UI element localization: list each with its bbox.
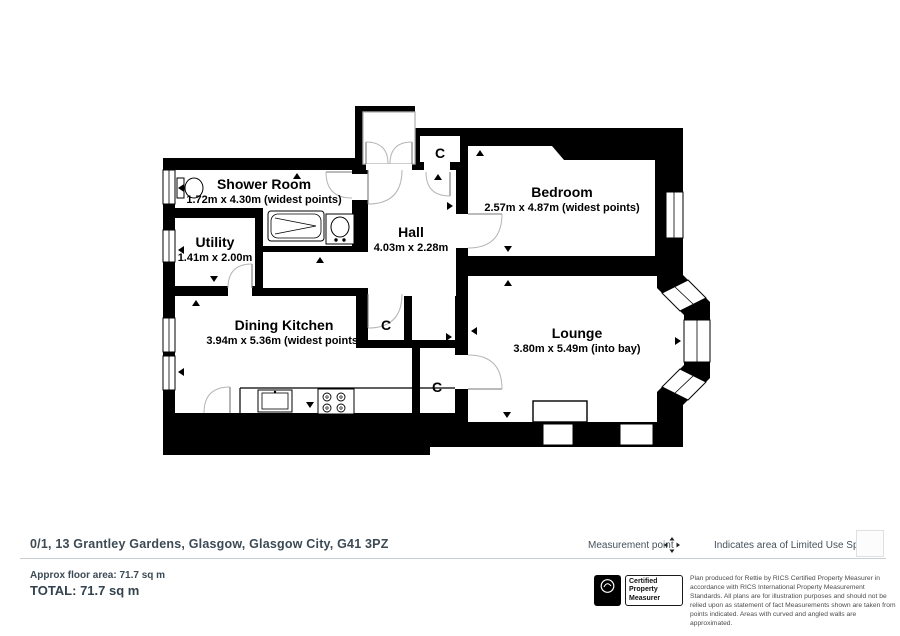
room-label-shower-room: Shower Room: [217, 176, 311, 192]
window-lounge-bottom-2: [620, 424, 653, 445]
room-dims-utility: 1.41m x 2.00m: [178, 252, 253, 264]
cupboard-label-3: C: [432, 379, 442, 395]
property-address: 0/1, 13 Grantley Gardens, Glasgow, Glasg…: [30, 537, 389, 551]
rics-logo: RICS: [594, 575, 621, 606]
footer-divider: [20, 558, 886, 559]
room-dims-hall: 4.03m x 2.28m: [374, 242, 449, 254]
floor-plan-svg: Shower Room 1.72m x 4.30m (widest points…: [0, 0, 900, 525]
bedroom-floor: [468, 146, 655, 256]
room-dims-shower-room: 1.72m x 4.30m (widest points): [186, 194, 342, 206]
room-dims-bedroom: 2.57m x 4.87m (widest points): [484, 202, 640, 214]
measurement-point-icon: [664, 537, 680, 553]
vestibule: [363, 112, 415, 164]
window-bedroom: [666, 192, 683, 238]
approx-floor-area: Approx floor area: 71.7 sq m: [30, 570, 165, 581]
room-label-bedroom: Bedroom: [531, 184, 592, 200]
total-floor-area: TOTAL: 71.7 sq m: [30, 583, 139, 598]
rics-logo-text: RICS: [599, 597, 616, 604]
window-lounge-bottom-1: [543, 424, 573, 445]
floorplan-page: Shower Room 1.72m x 4.30m (widest points…: [0, 0, 900, 636]
room-label-hall: Hall: [398, 224, 424, 240]
room-label-dining-kitchen: Dining Kitchen: [235, 317, 334, 333]
plan-disclaimer: Plan produced for Rettie by RICS Certifi…: [690, 574, 896, 628]
room-dims-dining-kitchen: 3.94m x 5.36m (widest points): [206, 335, 362, 347]
limited-use-swatch: [856, 530, 884, 557]
room-label-utility: Utility: [196, 234, 235, 250]
room-dims-lounge: 3.80m x 5.49m (into bay): [513, 343, 640, 355]
cupboard-label-1: C: [435, 145, 445, 161]
legend-limited-use-label: Indicates area of Limited Use Space: [714, 540, 875, 551]
legend-measurement-point-label: Measurement point: [588, 540, 674, 551]
certified-property-measurer-badge: Certified Property Measurer: [625, 575, 683, 606]
corridor-floor: [263, 252, 368, 288]
cupboard-label-2: C: [381, 317, 391, 333]
fireplace: [533, 401, 587, 422]
room-label-lounge: Lounge: [552, 325, 603, 341]
